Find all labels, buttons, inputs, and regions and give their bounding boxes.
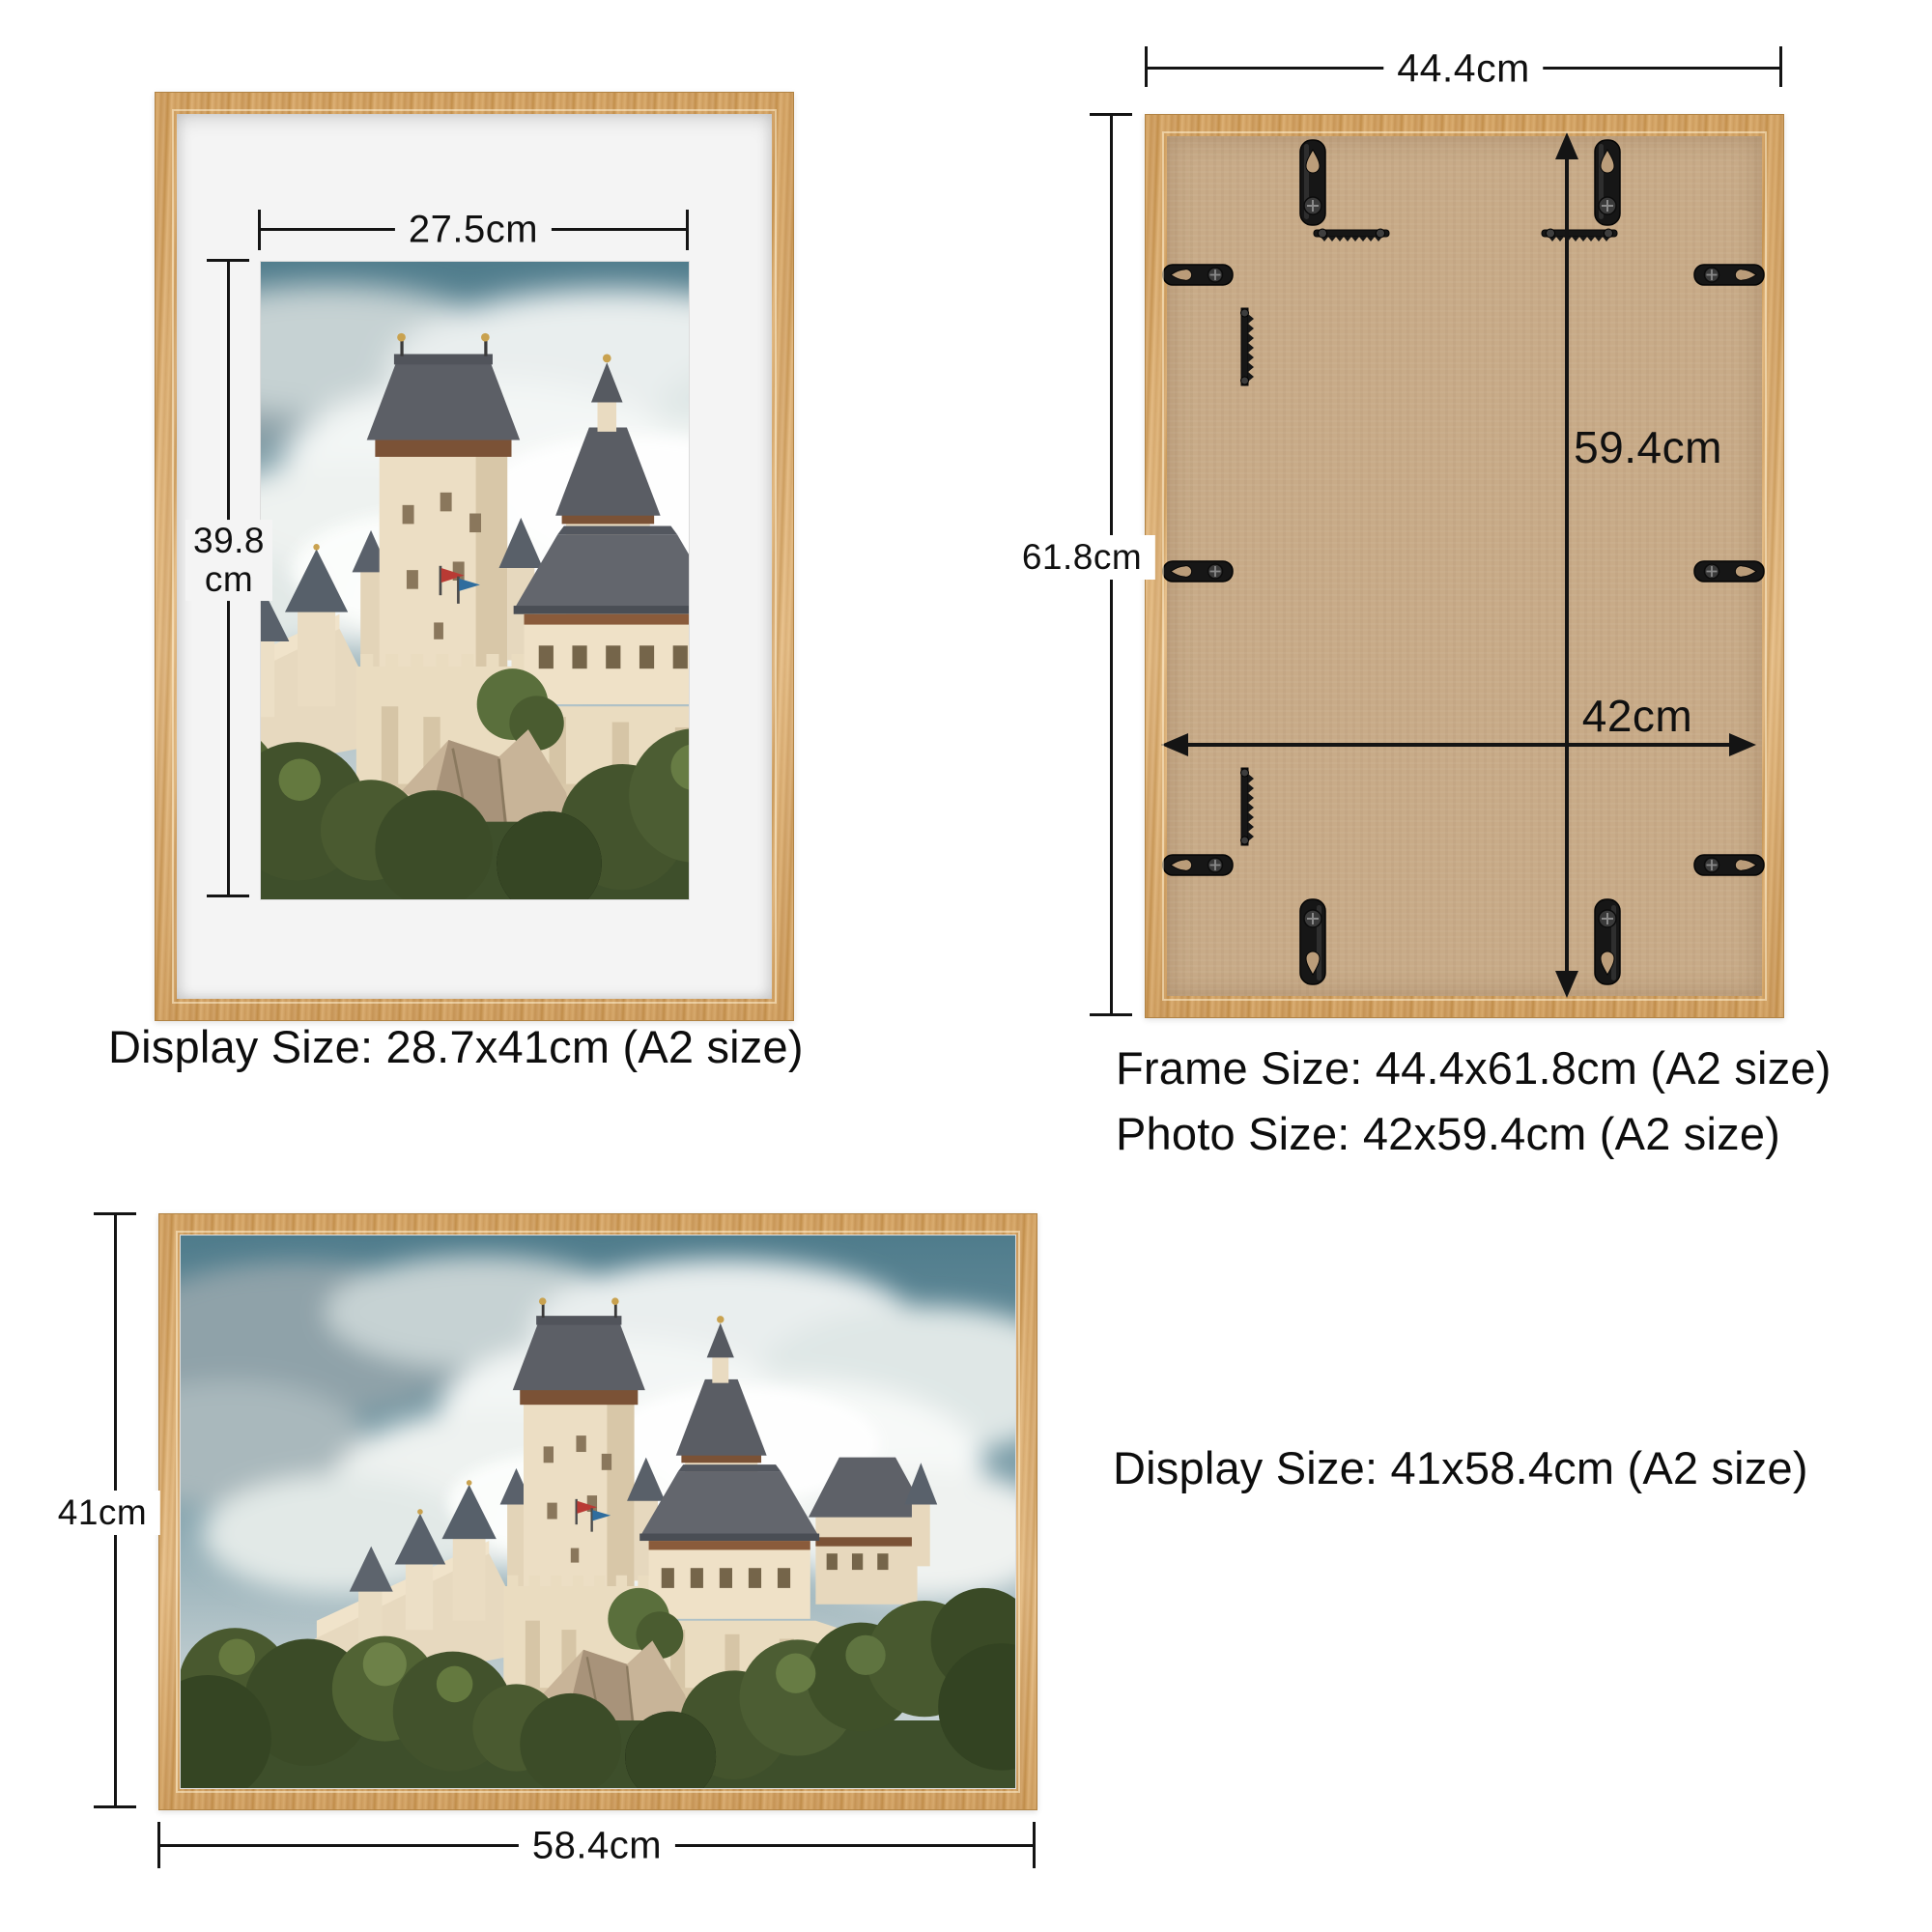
dim-tick <box>258 210 261 250</box>
arrow-left-icon <box>1161 733 1188 756</box>
dim-tick <box>1145 46 1148 87</box>
flip-tab-icon <box>1161 852 1235 878</box>
dim-tick <box>207 895 249 897</box>
caption-display-size-landscape: Display Size: 41x58.4cm (A2 size) <box>1113 1441 1808 1494</box>
dim-tick <box>1090 113 1132 116</box>
arrow-right-icon <box>1729 733 1756 756</box>
hanging-hook-icon <box>1297 897 1328 986</box>
sawtooth-hanger-icon <box>1541 227 1618 243</box>
dim-label-mat-opening-height: 39.8 cm <box>185 520 272 601</box>
dim-tick <box>157 1822 160 1868</box>
dim-tick <box>207 259 249 262</box>
dim-label-frame-height: 61.8cm <box>1009 535 1155 580</box>
flip-tab-icon <box>1161 262 1235 288</box>
dim-tick <box>686 210 689 250</box>
dim-tick <box>1033 1822 1036 1868</box>
dim-label-photo-width: 42cm <box>1582 690 1692 742</box>
frame-back: 59.4cm 42cm <box>1145 114 1784 1018</box>
dim-label-display-width: 58.4cm <box>519 1823 675 1870</box>
product-infographic: 27.5cm 39.8 cm Display Size: 28.7x41cm (… <box>0 0 1932 1932</box>
sawtooth-strip-icon <box>1239 766 1256 847</box>
dim-tick <box>94 1212 136 1215</box>
flip-tab-icon <box>1692 852 1766 878</box>
landscape-frame <box>158 1213 1037 1810</box>
hanging-hook-icon <box>1592 138 1623 227</box>
flip-tab-icon <box>1692 558 1766 584</box>
caption-frame-size: Frame Size: 44.4x61.8cm (A2 size) <box>1116 1041 1832 1094</box>
dim-label-mat-opening-width: 27.5cm <box>395 207 552 254</box>
caption-display-size-portrait: Display Size: 28.7x41cm (A2 size) <box>108 1020 804 1073</box>
dim-label-display-height: 41cm <box>44 1491 160 1535</box>
hanging-hook-icon <box>1592 897 1623 986</box>
dim-tick <box>1779 46 1782 87</box>
dim-tick <box>94 1805 136 1808</box>
flip-tab-icon <box>1161 558 1235 584</box>
castle-photo-landscape <box>181 1236 1015 1788</box>
dim-label-frame-width: 44.4cm <box>1383 44 1543 94</box>
dim-label-photo-height: 59.4cm <box>1574 421 1722 473</box>
sawtooth-hanger-icon <box>1313 227 1390 243</box>
sawtooth-strip-icon <box>1239 306 1256 387</box>
dim-line-photo-width <box>1184 743 1735 747</box>
frame-back-board <box>1167 136 1762 996</box>
dim-line-photo-height <box>1565 154 1569 975</box>
arrow-down-icon <box>1555 971 1578 998</box>
arrow-up-icon <box>1555 132 1578 159</box>
flip-tab-icon <box>1692 262 1766 288</box>
castle-photo-portrait <box>261 262 689 899</box>
hanging-hook-icon <box>1297 138 1328 227</box>
dim-tick <box>1090 1013 1132 1016</box>
caption-photo-size: Photo Size: 42x59.4cm (A2 size) <box>1116 1107 1780 1160</box>
